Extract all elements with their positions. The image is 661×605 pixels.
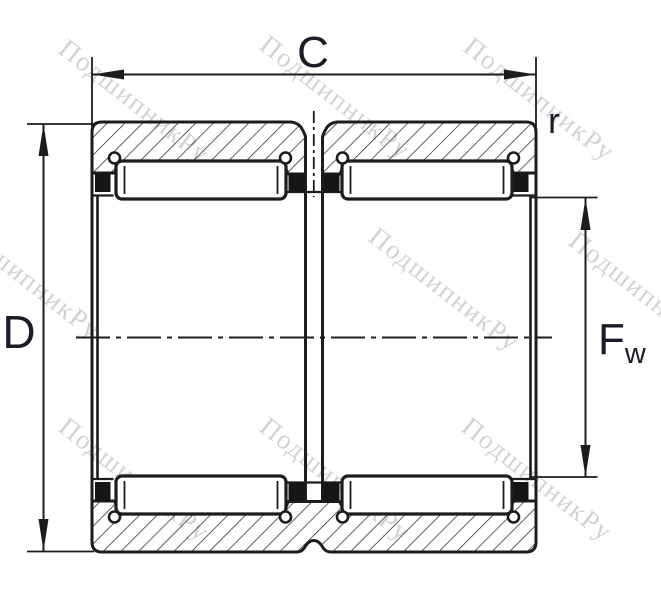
dim-label-c: C <box>297 28 329 77</box>
cage-pivot-circle <box>109 153 120 164</box>
roller-bottom-right <box>342 476 512 514</box>
cage-pivot-circle <box>280 153 291 164</box>
cage-block <box>289 482 306 501</box>
cage-pivot-circle <box>109 512 120 523</box>
cage-block <box>323 482 340 501</box>
cage-block <box>289 174 306 193</box>
cage-block <box>513 173 529 192</box>
cage-pivot-circle <box>280 512 291 523</box>
cage-block <box>513 482 529 501</box>
bearing-cross-section-drawing: ПодшипникРу ПодшипникРу ПодшипникРу Подш… <box>0 0 661 605</box>
roller-top-left <box>116 161 286 199</box>
roller-bottom-left <box>116 476 286 514</box>
dim-label-fw-sub: w <box>624 338 647 370</box>
cage-pivot-circle <box>337 512 348 523</box>
dim-label-d: D <box>2 306 35 358</box>
dim-label-fw-main: F <box>598 315 625 364</box>
cage-pivot-circle <box>508 153 519 164</box>
cage-block <box>323 174 340 193</box>
cage-block <box>95 173 111 192</box>
roller-top-right <box>342 161 512 199</box>
cage-block <box>95 482 111 501</box>
dim-label-r: r <box>548 100 560 141</box>
cage-pivot-circle <box>337 153 348 164</box>
technical-drawing-page: ПодшипникРу ПодшипникРу ПодшипникРу Подш… <box>0 0 661 605</box>
cage-pivot-circle <box>508 512 519 523</box>
